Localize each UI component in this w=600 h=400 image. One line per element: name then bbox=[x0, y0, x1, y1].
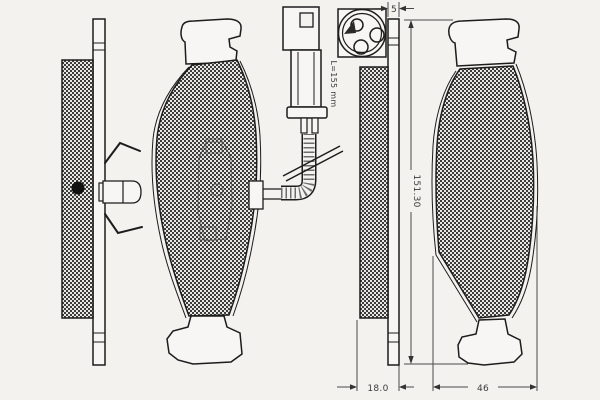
backplate-thickness-label: 5 bbox=[391, 5, 397, 15]
wire-length-label: L=155 mm bbox=[329, 61, 338, 108]
right-pad-side-view bbox=[360, 19, 399, 365]
clip-tongue bbox=[103, 181, 141, 203]
friction-material-front bbox=[156, 60, 257, 316]
dimension-151-30: 151.30 bbox=[408, 20, 421, 364]
technical-drawing: L=155 mm bbox=[0, 0, 600, 400]
friction-material-side bbox=[360, 67, 388, 318]
connector-face-view bbox=[338, 9, 386, 57]
brake-pad-diagram: L=155 mm bbox=[0, 0, 600, 400]
bottom-mount-tab bbox=[458, 319, 522, 365]
top-mount-tab bbox=[181, 19, 241, 64]
sensor-terminal bbox=[249, 181, 263, 209]
middle-pad-front-view bbox=[152, 19, 282, 364]
pad-thickness-label: 18.0 bbox=[367, 384, 388, 394]
dimension-46: 46 bbox=[433, 384, 537, 394]
bottom-width-label: 46 bbox=[477, 384, 489, 394]
right-pad-front-view bbox=[432, 19, 538, 365]
bottom-mount-tab bbox=[167, 316, 242, 364]
dimension-18-0: 18.0 bbox=[337, 384, 414, 394]
top-mount-tab bbox=[449, 19, 519, 66]
plug-shaft bbox=[291, 50, 321, 107]
plug-latch-window bbox=[300, 13, 313, 27]
wear-indicator-hole bbox=[72, 182, 85, 195]
left-pad-side-view bbox=[62, 19, 142, 365]
sensor-lead-wires bbox=[263, 189, 282, 199]
plug-pin-right bbox=[312, 118, 318, 133]
sensor-wire bbox=[281, 134, 309, 193]
plug-pin-left bbox=[301, 118, 307, 133]
friction-material-front bbox=[436, 66, 534, 318]
pad-height-label: 151.30 bbox=[411, 174, 421, 207]
backing-plate-side bbox=[388, 19, 399, 365]
plug-flange bbox=[287, 107, 327, 118]
sensor-plug bbox=[283, 7, 327, 133]
